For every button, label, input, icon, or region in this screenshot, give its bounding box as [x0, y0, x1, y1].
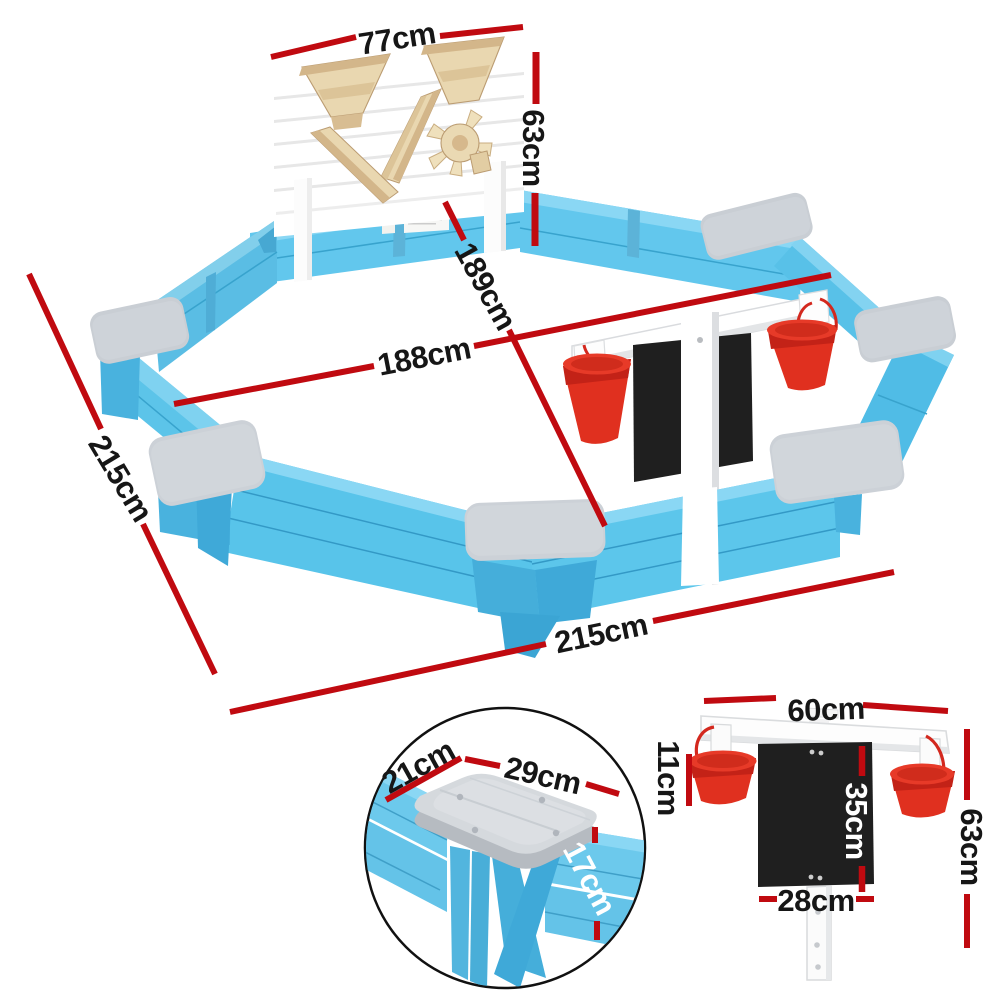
- svg-text:11cm: 11cm: [651, 740, 686, 816]
- svg-text:28cm: 28cm: [777, 883, 854, 918]
- svg-text:63cm: 63cm: [954, 808, 989, 885]
- svg-text:35cm: 35cm: [839, 782, 874, 859]
- svg-text:60cm: 60cm: [787, 691, 865, 729]
- svg-text:63cm: 63cm: [516, 109, 551, 186]
